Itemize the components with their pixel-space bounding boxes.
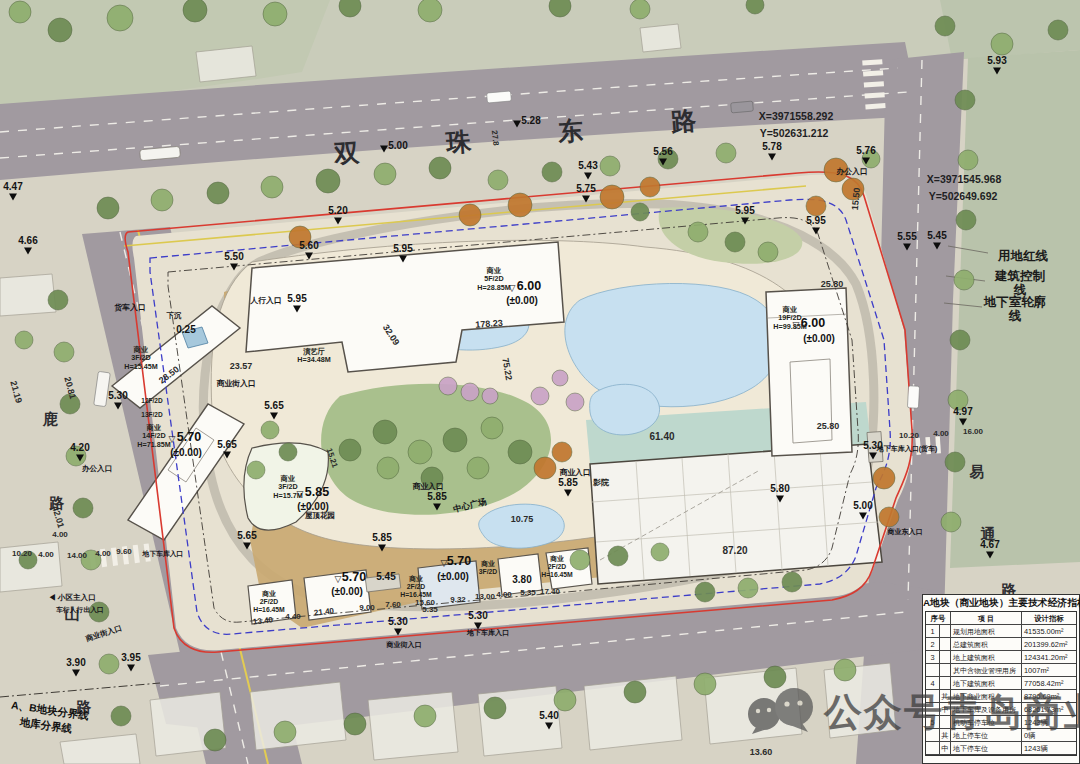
table-row: 中地下车库及设备用房68261.73m² xyxy=(926,703,1076,716)
coordinate-label-y-top: Y=502631.212 xyxy=(760,127,829,139)
site-plan-screenshot: 双珠东路鹿路山路易通路5.005.285.435.565.755.955.785… xyxy=(0,0,1080,764)
tree xyxy=(484,697,506,719)
car xyxy=(731,101,754,113)
table-cell: 中 xyxy=(940,703,951,716)
table-cell: 1 xyxy=(926,625,940,638)
table-row: 中地下停车位1243辆 xyxy=(926,742,1076,755)
tree xyxy=(954,270,974,290)
tree xyxy=(630,0,650,19)
tree xyxy=(600,156,620,176)
tree xyxy=(373,420,397,444)
tree xyxy=(738,578,758,598)
car xyxy=(907,386,919,409)
tree xyxy=(261,176,283,198)
tree xyxy=(566,393,584,411)
tree xyxy=(261,421,279,439)
tree xyxy=(508,440,532,464)
tree xyxy=(66,446,86,466)
tree xyxy=(481,417,503,439)
tree xyxy=(204,729,226,751)
tree xyxy=(945,452,965,472)
tree xyxy=(9,1,31,23)
tree xyxy=(658,149,678,169)
tree xyxy=(806,196,826,216)
tree xyxy=(414,705,436,727)
tree xyxy=(99,654,119,674)
table-cell: 1243辆 xyxy=(1022,716,1076,729)
car xyxy=(487,91,512,103)
tree xyxy=(725,232,745,252)
tree xyxy=(151,189,173,211)
table-cell xyxy=(926,690,940,703)
tree xyxy=(408,440,432,464)
table-cell: 5 xyxy=(926,716,940,729)
cinema-building xyxy=(590,444,882,584)
tree xyxy=(531,387,549,405)
table-cell xyxy=(926,729,940,742)
tree xyxy=(624,681,646,703)
tree xyxy=(289,226,311,248)
retail-box-3 xyxy=(418,561,480,609)
tree xyxy=(534,457,556,479)
tree xyxy=(1048,20,1068,40)
tree xyxy=(608,546,628,566)
tree xyxy=(991,33,1013,55)
tree xyxy=(247,461,265,479)
table-cell xyxy=(926,664,940,677)
table-cell: 中 xyxy=(940,742,951,755)
table-cell: 总建筑面积 xyxy=(951,638,1022,651)
table-cell: 其 xyxy=(940,729,951,742)
tree xyxy=(764,666,786,688)
tree xyxy=(488,170,508,190)
tree xyxy=(421,467,443,489)
tree xyxy=(824,158,848,182)
tree xyxy=(467,457,489,479)
table-cell: 77058.42m² xyxy=(1022,677,1076,690)
tree xyxy=(111,706,131,726)
table-row: 5机动车停车位1243辆 xyxy=(926,716,1076,729)
table-cell: 其 xyxy=(940,690,951,703)
table-cell xyxy=(940,664,951,677)
tower-19f-building xyxy=(766,288,852,456)
tree xyxy=(19,551,37,569)
table-header-cell: 序号 xyxy=(926,612,951,625)
table-header-cell: 设计指标 xyxy=(1022,612,1076,625)
tree xyxy=(60,394,80,414)
table-cell: 地下停车位 xyxy=(951,742,1022,755)
table-row: 其地上停车位0辆 xyxy=(926,729,1076,742)
table-cell xyxy=(940,651,951,664)
table-cell: 201399.62m² xyxy=(1022,638,1076,651)
tree xyxy=(81,550,101,570)
tree xyxy=(374,163,396,185)
table-cell: 地下建筑面积 xyxy=(951,677,1022,690)
table-cell: 41535.00m² xyxy=(1022,625,1076,638)
tree xyxy=(782,572,802,592)
tree xyxy=(418,0,442,22)
table-row: 其地下商业面积8796.69m² xyxy=(926,690,1076,703)
table-title: A地块（商业地块）主要技术经济指标 xyxy=(923,595,1079,611)
table-cell: 68261.73m² xyxy=(1022,703,1076,716)
tree xyxy=(54,342,74,362)
table-row: 3地上建筑面积124341.20m² xyxy=(926,651,1076,664)
table-cell: 机动车停车位 xyxy=(951,716,1022,729)
tree xyxy=(842,178,864,200)
tree xyxy=(956,210,976,230)
table-row: 2总建筑面积201399.62m² xyxy=(926,638,1076,651)
tree xyxy=(263,2,287,26)
retail-box-2 xyxy=(304,570,371,620)
coordinate-label-y-right: Y=502649.692 xyxy=(929,190,998,202)
tree xyxy=(274,721,296,743)
tree xyxy=(873,467,895,489)
table-grid: 序号项 目设计指标1规划用地面积41535.00m²2总建筑面积201399.6… xyxy=(925,611,1077,756)
tree xyxy=(958,150,978,170)
tree xyxy=(439,377,457,395)
tree xyxy=(554,689,576,711)
tree xyxy=(834,659,856,681)
table-cell xyxy=(940,638,951,651)
table-cell: 2 xyxy=(926,638,940,651)
table-cell: 0辆 xyxy=(1022,729,1076,742)
table-row: 4地下建筑面积77058.42m² xyxy=(926,677,1076,690)
table-cell xyxy=(926,703,940,716)
tree xyxy=(879,507,899,527)
coordinate-label-x-right: X=3971545.968 xyxy=(927,173,1001,185)
tree xyxy=(482,388,498,404)
site-plan-canvas xyxy=(0,0,1080,764)
tree xyxy=(107,5,133,31)
table-cell: 地上停车位 xyxy=(951,729,1022,742)
tree xyxy=(542,162,562,182)
table-cell: 地下车库及设备用房 xyxy=(951,703,1022,716)
tree xyxy=(695,582,715,602)
tech-indicators-table: A地块（商业地块）主要技术经济指标 序号项 目设计指标1规划用地面积41535.… xyxy=(922,594,1080,764)
tree xyxy=(758,242,778,262)
table-cell: 其中含物业管理用房 xyxy=(951,664,1022,677)
table-cell: 1007m² xyxy=(1022,664,1076,677)
tree xyxy=(461,383,479,401)
tree xyxy=(862,150,880,168)
tree xyxy=(377,457,399,479)
tree xyxy=(89,602,109,622)
table-cell xyxy=(940,625,951,638)
tree xyxy=(339,439,361,461)
tree xyxy=(316,169,340,193)
table-cell: 4 xyxy=(926,677,940,690)
tree xyxy=(552,442,572,462)
tree xyxy=(694,673,716,695)
tree xyxy=(443,428,467,452)
tree xyxy=(459,204,481,226)
east-lawn xyxy=(950,50,1080,568)
table-cell: 规划用地面积 xyxy=(951,625,1022,638)
tree xyxy=(97,197,119,219)
tree xyxy=(15,331,33,349)
tree xyxy=(552,370,568,386)
tree xyxy=(183,0,207,22)
table-row: 1规划用地面积41535.00m² xyxy=(926,625,1076,638)
tree xyxy=(207,182,229,204)
tree xyxy=(950,330,970,350)
tree xyxy=(600,185,624,209)
tree xyxy=(688,222,708,242)
retail-box-4 xyxy=(498,554,542,595)
tree xyxy=(48,290,68,310)
table-cell: 地上建筑面积 xyxy=(951,651,1022,664)
tree xyxy=(640,177,660,197)
tree xyxy=(508,193,532,217)
coordinate-label-x-top: X=3971558.292 xyxy=(759,110,833,122)
tree xyxy=(948,390,968,410)
table-cell xyxy=(940,677,951,690)
tree xyxy=(279,443,297,461)
tree xyxy=(955,90,975,110)
table-cell: 8796.69m² xyxy=(1022,690,1076,703)
tree xyxy=(935,16,955,36)
garage-ramp-east xyxy=(867,432,883,463)
tree xyxy=(570,550,590,570)
tree xyxy=(429,157,451,179)
table-header-cell: 项 目 xyxy=(951,612,1022,625)
table-header-row: 序号项 目设计指标 xyxy=(926,612,1076,625)
table-row: 其中含物业管理用房1007m² xyxy=(926,664,1076,677)
tree xyxy=(651,543,669,561)
table-cell: 3 xyxy=(926,651,940,664)
tree xyxy=(48,18,72,42)
table-cell xyxy=(940,716,951,729)
tree xyxy=(941,512,961,532)
table-cell: 124341.20m² xyxy=(1022,651,1076,664)
table-cell xyxy=(926,742,940,755)
tree xyxy=(73,498,93,518)
tree xyxy=(716,143,736,163)
tree xyxy=(631,203,649,221)
table-cell: 1243辆 xyxy=(1022,742,1076,755)
tree xyxy=(344,713,366,735)
table-cell: 地下商业面积 xyxy=(951,690,1022,703)
